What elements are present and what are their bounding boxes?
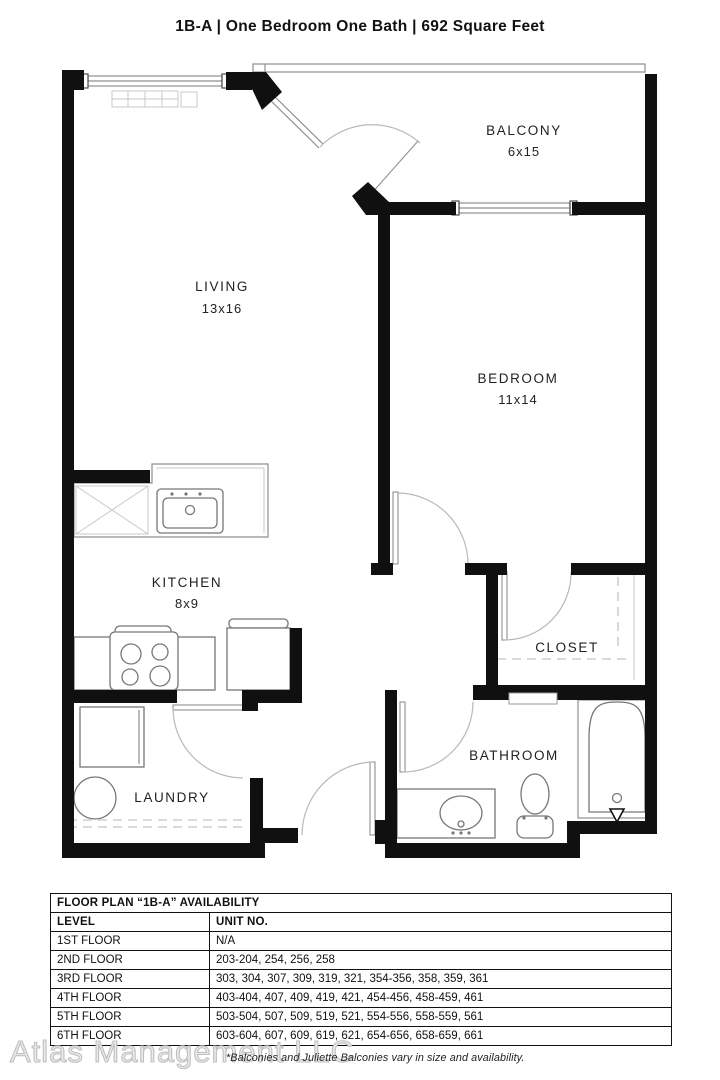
table-row: 3RD FLOOR 303, 304, 307, 309, 319, 321, … <box>51 970 672 989</box>
bathtub <box>578 700 655 822</box>
svg-text:BALCONY: BALCONY <box>486 123 562 138</box>
room-label-laundry: LAUNDRY <box>134 790 209 805</box>
bathroom-niche-overlay <box>509 693 557 704</box>
svg-text:6x15: 6x15 <box>508 144 540 159</box>
level-cell: 4TH FLOOR <box>51 989 210 1008</box>
table-header-row: LEVEL UNIT NO. <box>51 913 672 932</box>
laundry-dashed-line <box>68 820 248 827</box>
col-header-level: LEVEL <box>51 913 210 932</box>
svg-text:LIVING: LIVING <box>195 279 249 294</box>
svg-text:CLOSET: CLOSET <box>535 640 599 655</box>
level-cell: 5TH FLOOR <box>51 1008 210 1027</box>
col-header-unit-no: UNIT NO. <box>210 913 672 932</box>
table-row: 4TH FLOOR 403-404, 407, 409, 419, 421, 4… <box>51 989 672 1008</box>
washer <box>80 707 144 767</box>
bathroom-door <box>400 702 473 772</box>
living-window <box>81 74 229 88</box>
balcony-railing <box>253 64 645 72</box>
closet-door <box>502 572 571 640</box>
floor-plan-page: 1B-A | One Bedroom One Bath | 692 Square… <box>0 0 720 1080</box>
table-row: 1ST FLOOR N/A <box>51 932 672 951</box>
room-label-bathroom: BATHROOM <box>469 748 559 763</box>
refrigerator <box>227 619 290 690</box>
floor-plan-drawing: LIVING 13x16 BALCONY 6x15 BEDROOM 11x14 … <box>0 60 720 870</box>
table-title: FLOOR PLAN “1B-A” AVAILABILITY <box>51 894 672 913</box>
units-cell: 203-204, 254, 256, 258 <box>210 951 672 970</box>
room-label-kitchen: KITCHEN 8x9 <box>152 575 222 611</box>
svg-text:13x16: 13x16 <box>202 301 242 316</box>
vanity-sink <box>397 789 495 838</box>
room-label-bedroom: BEDROOM 11x14 <box>478 371 559 407</box>
svg-text:LAUNDRY: LAUNDRY <box>134 790 209 805</box>
units-cell: 503-504, 507, 509, 519, 521, 554-556, 55… <box>210 1008 672 1027</box>
level-cell: 3RD FLOOR <box>51 970 210 989</box>
laundry-door <box>173 705 243 778</box>
availability-table: FLOOR PLAN “1B-A” AVAILABILITY LEVEL UNI… <box>50 893 672 1046</box>
kitchen-sink <box>157 489 223 533</box>
entry-door <box>266 92 420 194</box>
svg-text:BATHROOM: BATHROOM <box>469 748 559 763</box>
room-label-living: LIVING 13x16 <box>195 279 249 316</box>
dryer <box>74 777 116 819</box>
svg-text:8x9: 8x9 <box>175 596 199 611</box>
svg-text:KITCHEN: KITCHEN <box>152 575 222 590</box>
room-label-closet: CLOSET <box>535 640 599 655</box>
table-row: 2ND FLOOR 203-204, 254, 256, 258 <box>51 951 672 970</box>
bedroom-door <box>393 492 468 564</box>
room-label-balcony: BALCONY 6x15 <box>486 123 562 159</box>
stove <box>74 626 215 690</box>
level-cell: 1ST FLOOR <box>51 932 210 951</box>
closet-shelf-dashes <box>497 575 634 680</box>
hall-door <box>302 762 375 835</box>
balcony-disclaimer-note: *Balconies and Juliette Balconies vary i… <box>226 1052 524 1064</box>
units-cell: 303, 304, 307, 309, 319, 321, 354-356, 3… <box>210 970 672 989</box>
svg-text:BEDROOM: BEDROOM <box>478 371 559 386</box>
units-cell: N/A <box>210 932 672 951</box>
units-cell: 403-404, 407, 409, 419, 421, 454-456, 45… <box>210 989 672 1008</box>
table-title-row: FLOOR PLAN “1B-A” AVAILABILITY <box>51 894 672 913</box>
walls <box>62 70 657 858</box>
hvac-unit <box>112 91 197 107</box>
table-row: 5TH FLOOR 503-504, 507, 509, 519, 521, 5… <box>51 1008 672 1027</box>
bedroom-window <box>452 201 577 215</box>
svg-text:11x14: 11x14 <box>498 392 537 407</box>
toilet <box>517 774 553 838</box>
page-title: 1B-A | One Bedroom One Bath | 692 Square… <box>0 18 720 36</box>
level-cell: 2ND FLOOR <box>51 951 210 970</box>
